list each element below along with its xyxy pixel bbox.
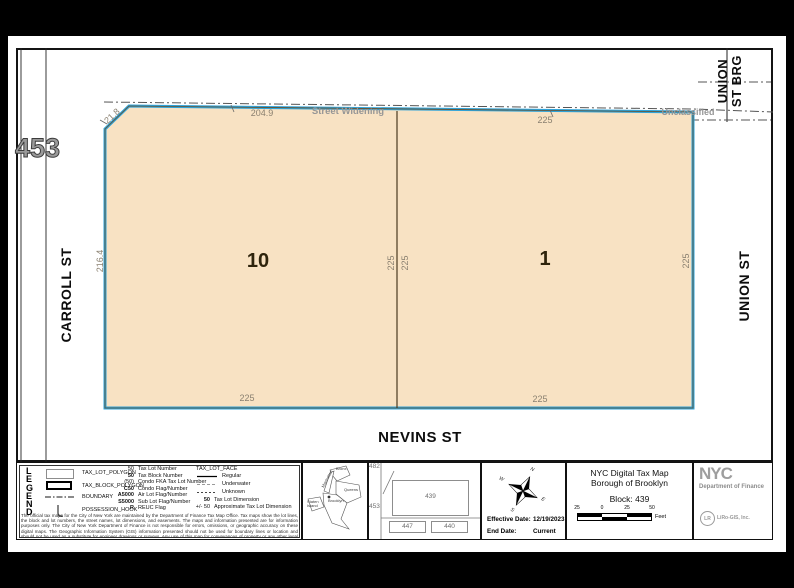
legend-label-air-lot: Air Lot Flag/Number xyxy=(138,492,187,498)
street-widening-label: Street Widening xyxy=(296,106,400,117)
legend-label-reuc: REUC Flag xyxy=(138,505,166,511)
legend-face-title: TAX_LOT_FACE xyxy=(196,466,237,472)
inset-label-bronx: Bronx xyxy=(336,467,346,471)
effective-date-value: 12/19/2023 xyxy=(533,516,565,523)
liro-logo: LR xyxy=(700,511,715,526)
legend-label-regular: Regular xyxy=(222,473,241,479)
legend-label-boundary: BOUNDARY xyxy=(82,494,113,500)
scale-tick-25w: 25 xyxy=(572,505,582,511)
street-label-carroll: CARROLL ST xyxy=(58,235,74,355)
locator-block-440: 440 xyxy=(431,523,468,530)
tax-lot-polygon-swatch xyxy=(46,469,74,479)
legend-label-condo-flag: Condo Flag/Number xyxy=(138,486,188,492)
legend-label-underwater: Underwater xyxy=(222,481,250,487)
legend-label-approx-dimension: Approximate Tax Lot Dimension xyxy=(214,504,292,510)
legend-label-unknown: Unknown xyxy=(222,489,245,495)
locator-block-439: 439 xyxy=(392,493,469,500)
street-label-nevins: NEVINS ST xyxy=(350,429,490,446)
nyc-logo: NYC xyxy=(699,464,732,484)
effective-date-label: Effective Date: xyxy=(487,516,531,523)
face-underwater-swatch xyxy=(196,482,218,487)
legend-code-lot-dimension: 50 xyxy=(196,497,210,503)
end-date-label: End Date: xyxy=(487,528,516,535)
scale-cell xyxy=(602,517,626,520)
legend-code-approx-dimension: +/- 50 xyxy=(192,504,210,510)
lot-number-10: 10 xyxy=(238,250,278,273)
end-date-value: Current xyxy=(533,528,556,535)
face-regular-swatch xyxy=(196,474,218,479)
legend-label-lot-dimension: Tax Lot Dimension xyxy=(214,497,259,503)
lot-number-1: 1 xyxy=(525,248,565,271)
scale-cell xyxy=(627,517,651,520)
legend-code-sub-lot: S5000 xyxy=(112,499,134,505)
face-unknown-swatch xyxy=(196,490,218,495)
legend-code-lot-number: 50 xyxy=(112,466,134,472)
locator-block-482: 482 xyxy=(369,463,380,470)
dim-divider-right-225: 225 xyxy=(400,249,410,277)
inset-label-queens: Queens xyxy=(344,488,358,492)
scale-cell xyxy=(578,517,602,520)
dim-top-225: 225 xyxy=(531,115,559,125)
dim-216-4: 216.4 xyxy=(95,241,105,281)
dim-bottom-right-225: 225 xyxy=(526,394,554,404)
legend-label-lot-number: Tax Lot Number xyxy=(138,466,177,472)
dim-204-9: 204.9 xyxy=(240,108,284,118)
scale-bar xyxy=(577,513,652,521)
dim-right-225: 225 xyxy=(681,247,691,275)
neighbor-block-number: 453 xyxy=(15,133,60,164)
scale-tick-25e: 25 xyxy=(622,505,632,511)
legend-code-air-lot: A5000 xyxy=(112,492,134,498)
tax-map-page: 453 CARROLL ST NEVINS ST UNION ST UNION … xyxy=(0,0,794,588)
legend-label-block-number: Tax Block Number xyxy=(138,473,183,479)
street-label-union-brg: UNION ST BRG xyxy=(716,26,746,136)
legend-code-condo-flag: C50 xyxy=(112,486,134,492)
boundary-swatch xyxy=(44,494,76,500)
legend-code-condo-fka: (50) xyxy=(112,479,134,485)
unclassified-label: Unclassified xyxy=(656,107,720,117)
inset-label-brooklyn: Brooklyn xyxy=(328,499,344,503)
dof-label: Department of Finance xyxy=(699,484,764,490)
legend-code-reuc: R xyxy=(112,505,134,511)
map-title-line2: Borough of Brooklyn xyxy=(566,478,693,488)
map-title-block-number: Block: 439 xyxy=(566,494,693,504)
street-label-union: UNION ST xyxy=(736,226,752,346)
dim-divider-left-225: 225 xyxy=(386,249,396,277)
map-title-line1: NYC Digital Tax Map xyxy=(566,468,693,478)
locator-block-447: 447 xyxy=(389,523,426,530)
union-brg-line2: ST BRG xyxy=(730,26,744,136)
legend-code-block-number: 50 xyxy=(112,473,134,479)
scale-tick-50: 50 xyxy=(647,505,657,511)
tax-block-polygon-swatch xyxy=(46,481,72,490)
legend-label-sub-lot: Sub Lot Flag/Number xyxy=(138,499,190,505)
union-brg-line1: UNION xyxy=(716,26,730,136)
scale-unit-label: Feet xyxy=(655,514,666,520)
dim-bottom-left-225: 225 xyxy=(233,393,261,403)
liro-vendor-label: LiRo-GIS, Inc. xyxy=(717,515,750,521)
locator-block-453: 453 xyxy=(369,503,380,510)
inset-label-staten-island: Staten Island xyxy=(307,500,321,508)
legend-title: L E G E N D xyxy=(26,467,33,517)
disclaimer-text: The official tax maps for the City of Ne… xyxy=(21,513,298,537)
scale-tick-0: 0 xyxy=(597,505,607,511)
